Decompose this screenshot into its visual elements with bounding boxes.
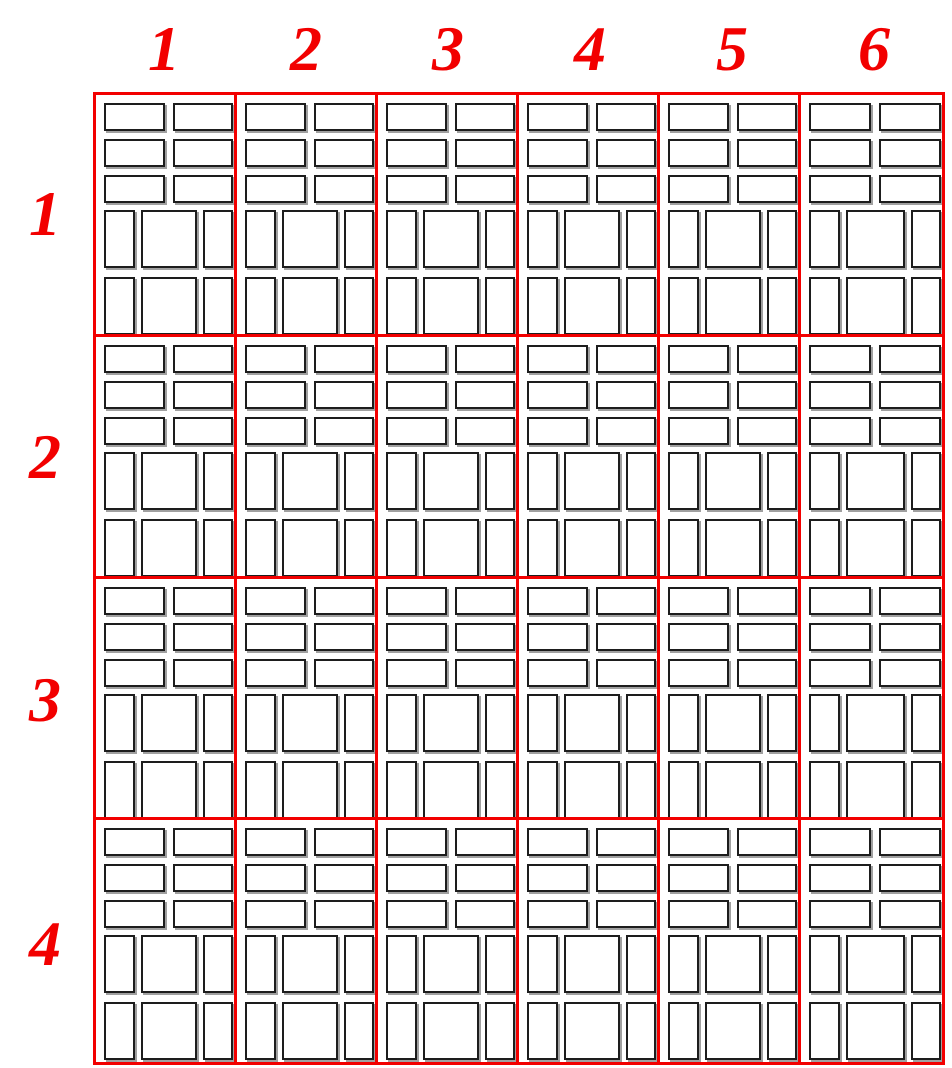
wide-box [809,659,871,687]
tall-box [203,1002,233,1060]
tall-box [809,210,840,268]
column-label-2: 2 [290,20,322,78]
wide-box [527,623,588,651]
tall-box [104,452,135,510]
wide-box [386,345,447,373]
wide-box [173,139,234,167]
tile-top-block [386,345,515,445]
wide-box [173,623,234,651]
wide-box [455,103,516,131]
wide-box [314,828,375,856]
tall-box [668,694,699,752]
tall-box [245,935,276,993]
tall-box [527,694,558,752]
wide-box [668,103,729,131]
tall-box [485,1002,515,1060]
wide-box [879,345,941,373]
tall-box [344,1002,374,1060]
tall-box [344,519,374,577]
wide-box [527,900,588,928]
wide-box [455,345,516,373]
wide-box [596,623,657,651]
tall-box [104,1002,135,1060]
tall-box [386,694,417,752]
tall-box [344,452,374,510]
wide-box [596,345,657,373]
wide-box [104,103,165,131]
wide-box [104,175,165,203]
wide-box [173,175,234,203]
tile-r2-c4 [519,337,660,579]
tile-bottom-block [104,452,233,577]
tall-box [626,694,656,752]
tall-box [911,694,941,752]
wide-box [879,417,941,445]
wide-box [314,417,375,445]
tall-box [564,1002,620,1060]
tall-box [705,1002,761,1060]
wide-box [314,345,375,373]
column-label-6: 6 [858,20,890,78]
tall-box [485,935,515,993]
wide-box [527,659,588,687]
wide-box [527,139,588,167]
wide-box [596,139,657,167]
tall-box [485,452,515,510]
tile-top-block [386,587,515,687]
wide-box [245,103,306,131]
wide-box [737,623,798,651]
wide-box [314,587,375,615]
tall-box [423,210,479,268]
tall-box [245,277,276,335]
wide-box [527,175,588,203]
wide-box [879,587,941,615]
tall-box [344,277,374,335]
wide-box [173,828,234,856]
tall-box [668,519,699,577]
tile-top-block [104,587,233,687]
wide-box [596,417,657,445]
wide-box [809,175,871,203]
wide-box [386,381,447,409]
wide-box [809,345,871,373]
tile-r3-c2 [237,579,378,821]
tall-box [767,694,797,752]
tall-box [846,277,905,335]
tile-bottom-block [386,452,515,577]
tall-box [203,210,233,268]
tile-grid [93,92,945,1065]
wide-box [879,864,941,892]
wide-box [245,828,306,856]
tall-box [705,761,761,819]
wide-box [737,139,798,167]
wide-box [104,345,165,373]
wide-box [809,623,871,651]
tile-r1-c6 [801,95,942,337]
tall-box [141,694,197,752]
tile-bottom-block [386,694,515,819]
tile-r4-c2 [237,820,378,1062]
wide-box [879,381,941,409]
tall-box [846,694,905,752]
wide-box [668,900,729,928]
wide-box [245,623,306,651]
tall-box [485,519,515,577]
tall-box [564,935,620,993]
tall-box [141,210,197,268]
wide-box [245,587,306,615]
wide-box [104,139,165,167]
wide-box [879,659,941,687]
tile-bottom-block [245,452,374,577]
wide-box [386,175,447,203]
tall-box [203,935,233,993]
tall-box [767,761,797,819]
tall-box [485,694,515,752]
wide-box [245,175,306,203]
tall-box [104,935,135,993]
tile-r3-c3 [378,579,519,821]
wide-box [596,659,657,687]
tile-top-block [527,587,656,687]
tall-box [423,694,479,752]
tall-box [846,935,905,993]
tall-box [564,519,620,577]
tall-box [282,761,338,819]
wide-box [809,587,871,615]
wide-box [527,417,588,445]
tile-bottom-block [104,210,233,335]
wide-box [527,381,588,409]
tall-box [141,1002,197,1060]
tall-box [423,452,479,510]
wide-box [104,900,165,928]
wide-box [104,659,165,687]
tall-box [282,1002,338,1060]
tile-top-block [809,587,941,687]
wide-box [809,900,871,928]
wide-box [173,381,234,409]
row-label-1: 1 [29,185,61,243]
wide-box [173,587,234,615]
tall-box [245,694,276,752]
tall-box [386,935,417,993]
wide-box [668,345,729,373]
wide-box [314,175,375,203]
tile-r4-c3 [378,820,519,1062]
wide-box [173,417,234,445]
wide-box [245,900,306,928]
wide-box [668,623,729,651]
wide-box [809,417,871,445]
wide-box [809,864,871,892]
wide-box [668,587,729,615]
wide-box [104,864,165,892]
tile-r3-c4 [519,579,660,821]
tall-box [141,935,197,993]
tile-bottom-block [245,210,374,335]
tall-box [911,452,941,510]
tall-box [386,519,417,577]
tile-r3-c6 [801,579,942,821]
wide-box [737,417,798,445]
wide-box [173,659,234,687]
tall-box [767,277,797,335]
tall-box [846,1002,905,1060]
wide-box [596,381,657,409]
tile-r3-c1 [96,579,237,821]
tile-top-block [245,345,374,445]
tall-box [344,935,374,993]
tall-box [564,452,620,510]
tall-box [344,761,374,819]
wide-box [314,864,375,892]
wide-box [596,900,657,928]
tall-box [767,519,797,577]
wide-box [314,900,375,928]
tile-top-block [245,587,374,687]
tall-box [245,210,276,268]
tall-box [809,277,840,335]
tile-bottom-block [668,452,797,577]
tall-box [527,1002,558,1060]
tile-bottom-block [245,694,374,819]
tall-box [527,519,558,577]
tile-r2-c3 [378,337,519,579]
tall-box [245,1002,276,1060]
tall-box [846,452,905,510]
wide-box [245,417,306,445]
wide-box [386,659,447,687]
tall-box [846,519,905,577]
tall-box [104,694,135,752]
tile-r2-c6 [801,337,942,579]
wide-box [737,659,798,687]
tile-top-block [668,828,797,928]
wide-box [809,103,871,131]
wide-box [386,587,447,615]
tile-r4-c5 [660,820,801,1062]
tall-box [767,210,797,268]
tall-box [104,519,135,577]
wide-box [104,417,165,445]
wide-box [173,864,234,892]
tile-top-block [245,828,374,928]
wide-box [809,139,871,167]
tall-box [668,761,699,819]
wide-box [386,139,447,167]
tile-r1-c4 [519,95,660,337]
tile-top-block [668,345,797,445]
tall-box [911,761,941,819]
tall-box [423,935,479,993]
tall-box [203,452,233,510]
wide-box [314,381,375,409]
tall-box [809,519,840,577]
tall-box [705,935,761,993]
figure-canvas: 123456 1234 [0,0,952,1068]
tile-r1-c5 [660,95,801,337]
wide-box [455,587,516,615]
wide-box [527,103,588,131]
column-labels: 123456 [93,0,945,82]
tall-box [846,761,905,819]
wide-box [314,623,375,651]
wide-box [737,175,798,203]
wide-box [455,175,516,203]
wide-box [104,381,165,409]
tall-box [911,935,941,993]
tall-box [527,210,558,268]
wide-box [668,828,729,856]
tile-bottom-block [809,210,941,335]
wide-box [668,659,729,687]
tall-box [809,761,840,819]
tall-box [527,277,558,335]
wide-box [668,417,729,445]
tile-r3-c5 [660,579,801,821]
tall-box [141,519,197,577]
tall-box [527,452,558,510]
wide-box [879,139,941,167]
tall-box [245,761,276,819]
tall-box [245,519,276,577]
tile-r1-c1 [96,95,237,337]
wide-box [527,828,588,856]
wide-box [314,139,375,167]
tile-top-block [386,828,515,928]
wide-box [245,864,306,892]
wide-box [455,381,516,409]
tile-bottom-block [668,210,797,335]
tall-box [386,761,417,819]
tall-box [203,519,233,577]
wide-box [737,828,798,856]
tall-box [141,761,197,819]
column-label-4: 4 [574,20,606,78]
tile-top-block [527,103,656,203]
wide-box [455,139,516,167]
tall-box [485,761,515,819]
tile-top-block [668,103,797,203]
wide-box [314,103,375,131]
wide-box [245,139,306,167]
wide-box [737,103,798,131]
tall-box [282,935,338,993]
tile-top-block [386,103,515,203]
tile-r1-c2 [237,95,378,337]
tall-box [344,694,374,752]
row-label-4: 4 [29,915,61,973]
wide-box [455,623,516,651]
tile-bottom-block [527,694,656,819]
tall-box [282,694,338,752]
tile-bottom-block [386,935,515,1060]
wide-box [314,659,375,687]
wide-box [455,864,516,892]
wide-box [737,345,798,373]
tile-bottom-block [527,935,656,1060]
wide-box [596,828,657,856]
tall-box [626,519,656,577]
tall-box [141,452,197,510]
wide-box [527,587,588,615]
tall-box [626,935,656,993]
tall-box [911,277,941,335]
tall-box [564,277,620,335]
wide-box [879,828,941,856]
tile-bottom-block [104,935,233,1060]
tile-top-block [527,345,656,445]
wide-box [386,103,447,131]
tall-box [104,210,135,268]
tall-box [485,277,515,335]
wide-box [386,900,447,928]
wide-box [455,900,516,928]
tall-box [527,761,558,819]
tall-box [809,452,840,510]
wide-box [668,139,729,167]
tall-box [809,1002,840,1060]
tall-box [282,210,338,268]
tall-box [626,1002,656,1060]
row-label-3: 3 [29,671,61,729]
wide-box [173,900,234,928]
tall-box [668,452,699,510]
wide-box [245,659,306,687]
wide-box [386,828,447,856]
tall-box [809,935,840,993]
wide-box [668,175,729,203]
tile-bottom-block [527,452,656,577]
tall-box [104,761,135,819]
tile-top-block [668,587,797,687]
tall-box [527,935,558,993]
tall-box [386,210,417,268]
tall-box [564,761,620,819]
tall-box [485,210,515,268]
wide-box [104,587,165,615]
wide-box [879,175,941,203]
tall-box [767,452,797,510]
column-label-5: 5 [716,20,748,78]
wide-box [455,828,516,856]
tall-box [809,694,840,752]
tile-top-block [809,345,941,445]
tile-top-block [245,103,374,203]
tall-box [282,277,338,335]
tile-bottom-block [668,935,797,1060]
wide-box [596,103,657,131]
tall-box [767,935,797,993]
wide-box [596,175,657,203]
wide-box [737,381,798,409]
tall-box [423,277,479,335]
tall-box [668,1002,699,1060]
wide-box [455,417,516,445]
wide-box [879,103,941,131]
tile-bottom-block [386,210,515,335]
tile-top-block [809,103,941,203]
tall-box [282,519,338,577]
tile-bottom-block [809,452,941,577]
tall-box [386,1002,417,1060]
wide-box [104,828,165,856]
tall-box [203,277,233,335]
tall-box [203,694,233,752]
